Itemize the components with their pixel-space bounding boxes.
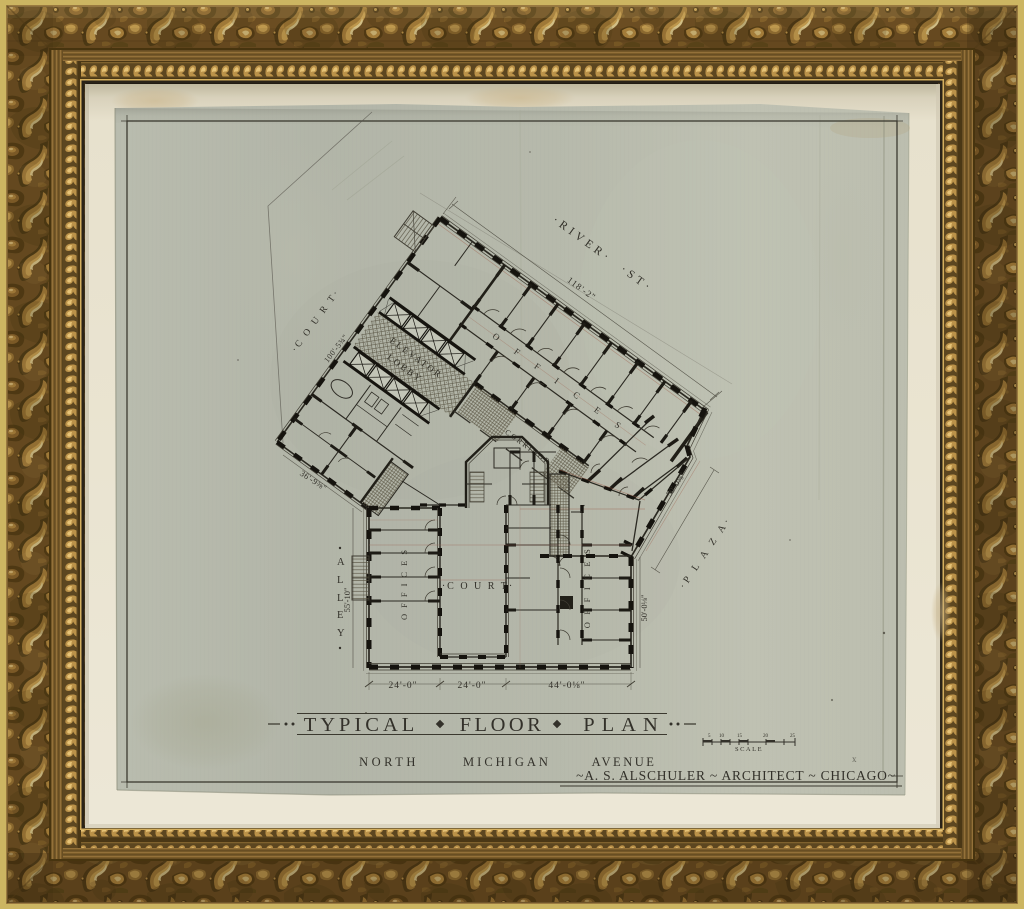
svg-text:A: A bbox=[337, 557, 345, 568]
svg-text:MICHIGAN: MICHIGAN bbox=[463, 755, 551, 769]
svg-text:10: 10 bbox=[719, 734, 725, 739]
svg-text:25: 25 bbox=[790, 734, 796, 739]
svg-text:FLOOR: FLOOR bbox=[460, 714, 545, 736]
svg-text:NORTH: NORTH bbox=[359, 755, 419, 769]
svg-text:~A. S. ALSCHULER ~ ARCHITECT ~: ~A. S. ALSCHULER ~ ARCHITECT ~ CHICAGO~ bbox=[576, 768, 896, 783]
svg-text:PLAN: PLAN bbox=[583, 714, 665, 736]
svg-text:SCALE: SCALE bbox=[735, 746, 763, 753]
svg-text:55'-10": 55'-10" bbox=[342, 588, 352, 613]
svg-text:·C O U R T·: ·C O U R T· bbox=[442, 581, 514, 592]
svg-text:L: L bbox=[337, 575, 343, 586]
svg-text:24'-0": 24'-0" bbox=[457, 681, 486, 691]
svg-text:AVENUE: AVENUE bbox=[592, 755, 657, 769]
svg-text:24'-0": 24'-0" bbox=[388, 681, 417, 691]
svg-text:x: x bbox=[852, 754, 857, 764]
svg-text:Y: Y bbox=[337, 628, 345, 639]
svg-text:20: 20 bbox=[763, 734, 769, 739]
svg-text:OFFICES: OFFICES bbox=[399, 544, 409, 620]
svg-text:15: 15 bbox=[737, 734, 743, 739]
svg-text:TYPICAL: TYPICAL bbox=[304, 714, 419, 736]
svg-text:OFFICES: OFFICES bbox=[582, 542, 592, 629]
svg-text:44'-0⅛": 44'-0⅛" bbox=[548, 681, 585, 691]
svg-text:50'-0⅛": 50'-0⅛" bbox=[639, 595, 649, 622]
